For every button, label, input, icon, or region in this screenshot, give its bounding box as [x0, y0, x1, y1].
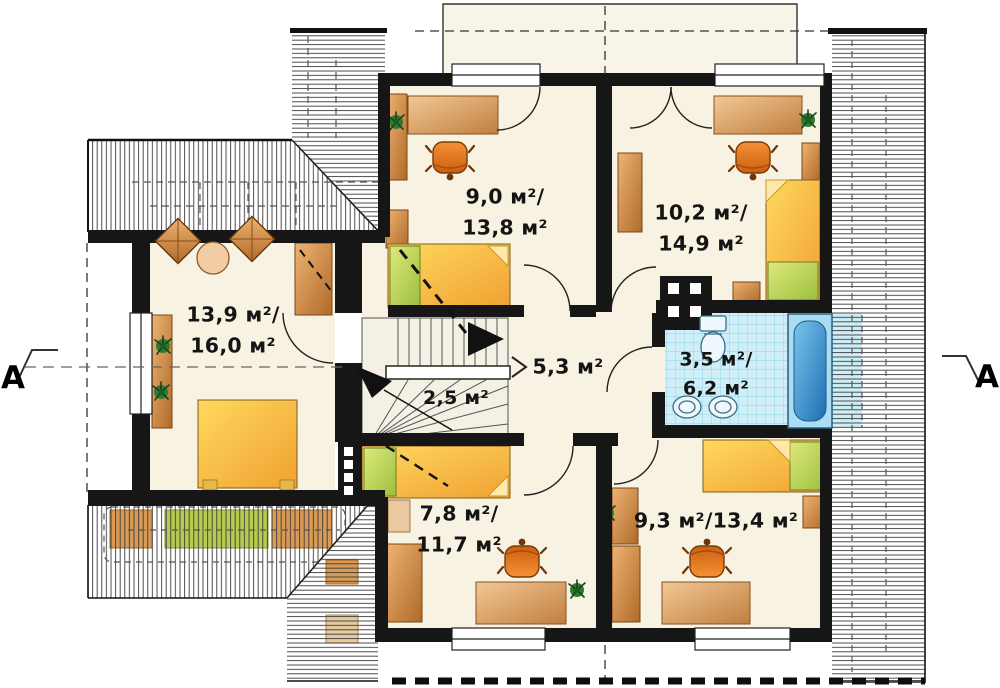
round-table: [197, 242, 229, 274]
nightstand: [388, 500, 410, 532]
room-area-label-staircase: 2,5 м²: [423, 384, 489, 413]
desk: [662, 582, 750, 624]
section-marker-right-letter: A: [975, 359, 999, 395]
desk: [408, 96, 498, 134]
shelf: [152, 315, 172, 428]
room-area-label-bedroom-top-right: 10,2 м²/ 14,9 м²: [654, 197, 747, 259]
room-area-label-bathroom: 3,5 м²/ 6,2 м²: [679, 346, 752, 403]
wardrobe: [295, 243, 332, 315]
bed: [388, 244, 510, 308]
room-area-label-bedroom-bottom-right: 9,3 м²/13,4 м²: [634, 506, 798, 537]
wardrobe: [612, 546, 640, 622]
desk: [714, 96, 802, 134]
cabinet: [802, 143, 820, 180]
section-marker-right-line: [942, 356, 979, 382]
attic-floor-plan: 9,0 м²/ 13,8 м² 10,2 м²/ 14,9 м² 13,9 м²…: [0, 0, 1000, 688]
section-marker-left-letter: A: [1, 360, 25, 396]
desk: [476, 582, 566, 624]
double-bed: [198, 400, 297, 490]
room-area-label-bedroom-left: 13,9 м²/ 16,0 м²: [186, 299, 279, 361]
room-area-label-hall: 5,3 м²: [533, 352, 604, 383]
bed: [766, 180, 820, 302]
nightstand: [733, 282, 760, 302]
wardrobe: [618, 153, 642, 232]
roof-hatch-right: [832, 30, 925, 683]
handrail: [386, 366, 510, 379]
room-area-label-bedroom-top-left: 9,0 м²/ 13,8 м²: [462, 181, 548, 243]
wall-slit-bar: [338, 442, 362, 495]
bed: [703, 440, 827, 492]
bathtub: [788, 314, 832, 428]
floor-plan-drawing: [0, 0, 1000, 688]
room-area-label-bedroom-bottom-left: 7,8 м²/ 11,7 м²: [416, 498, 502, 560]
roof-hatch-gable: [292, 30, 385, 140]
